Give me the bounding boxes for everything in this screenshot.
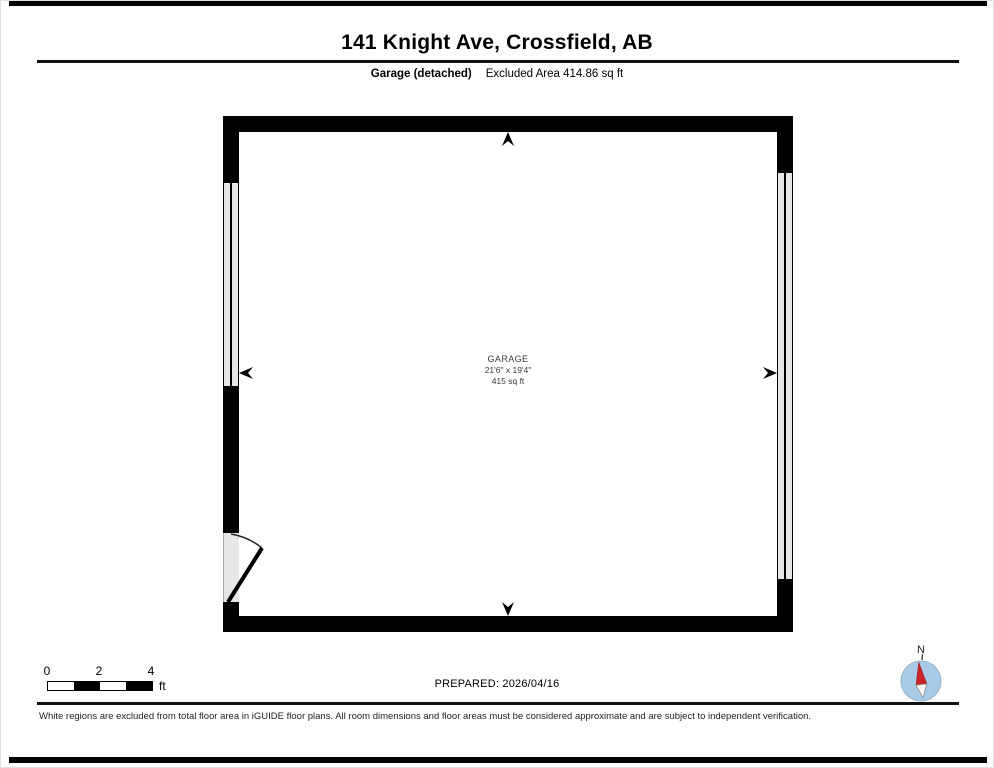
dimension-arrow-down-icon — [502, 602, 514, 616]
page-top-border — [9, 1, 987, 6]
floor-subtitle: Garage (detached) Excluded Area 414.86 s… — [1, 68, 993, 80]
prepared-date: PREPARED: 2026/04/16 — [1, 678, 993, 690]
window-glass-line — [230, 183, 232, 386]
compass-north-label: N — [917, 644, 925, 656]
wall-west-middle — [223, 386, 239, 533]
window-east — [777, 173, 793, 579]
room-dimensions: 21'6" x 19'4" — [428, 365, 588, 376]
window-glass-line — [784, 173, 786, 579]
wall-east-upper — [777, 116, 793, 173]
page-bottom-border — [9, 757, 987, 763]
scale-label-2: 2 — [96, 664, 103, 678]
floorplan-page: 141 Knight Ave, Crossfield, AB Garage (d… — [0, 0, 994, 768]
door-swing-icon — [223, 526, 283, 616]
header-divider — [37, 60, 959, 63]
footer-divider — [37, 702, 959, 705]
dimension-arrow-left-icon — [239, 367, 253, 379]
room-label: GARAGE 21'6" x 19'4" 415 sq ft — [428, 354, 588, 386]
page-title: 141 Knight Ave, Crossfield, AB — [1, 31, 993, 55]
scale-label-0: 0 — [44, 664, 51, 678]
disclaimer-text: White regions are excluded from total fl… — [39, 711, 959, 722]
floor-name-label: Garage (detached) — [371, 68, 472, 80]
room-name: GARAGE — [428, 354, 588, 365]
dimension-arrow-up-icon — [502, 132, 514, 146]
wall-east-lower — [777, 579, 793, 632]
compass-icon: N — [897, 641, 945, 703]
scale-label-4: 4 — [148, 664, 155, 678]
wall-north — [223, 116, 793, 132]
excluded-area-label: Excluded Area 414.86 sq ft — [486, 68, 623, 80]
window-west — [223, 183, 239, 386]
wall-west-upper — [223, 116, 239, 183]
floorplan-drawing: GARAGE 21'6" x 19'4" 415 sq ft — [223, 116, 793, 632]
wall-south — [223, 616, 793, 632]
dimension-arrow-right-icon — [763, 367, 777, 379]
room-area: 415 sq ft — [428, 376, 588, 387]
